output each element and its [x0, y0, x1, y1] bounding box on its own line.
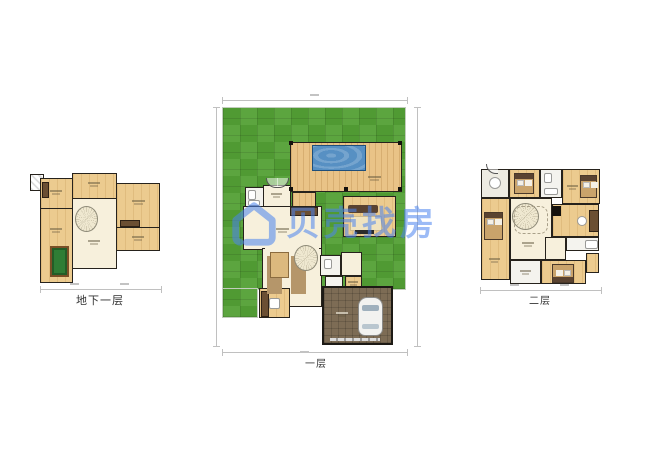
- chair-icon: [577, 216, 587, 226]
- swimming-pool: [312, 145, 366, 171]
- dining-table: [270, 252, 289, 278]
- floorplan-image: 地下一层: [0, 0, 647, 466]
- first-corridor: [341, 252, 362, 276]
- toilet-icon: [324, 259, 332, 269]
- bathtub-icon: [585, 240, 598, 249]
- deck-column: [289, 187, 293, 191]
- garage-door: [330, 338, 380, 341]
- first-dimension-number: [310, 94, 319, 96]
- toilet-icon: [544, 173, 552, 183]
- basement-dimension-number: [70, 283, 79, 285]
- garage-label-smudge: [336, 312, 348, 314]
- toilet-icon: [248, 190, 256, 200]
- second-dimension-number: [510, 284, 519, 286]
- desk: [589, 210, 599, 232]
- bed: [484, 212, 503, 240]
- bed: [552, 264, 574, 283]
- deck-column: [289, 141, 293, 145]
- second-closet: [586, 253, 599, 273]
- entry-label-smudge: [271, 193, 282, 195]
- second-dimension-number: [560, 284, 569, 286]
- basement-spiral-stair: [75, 206, 98, 232]
- basement-room-label-smudge: [50, 228, 62, 230]
- hall-label-smudge: [522, 242, 534, 244]
- basement-room-label-smudge: [132, 236, 144, 238]
- car: [358, 297, 383, 336]
- sofa: [348, 205, 378, 213]
- basement-room-label-smudge: [88, 182, 100, 184]
- kitchen-counter: [261, 291, 269, 317]
- deck-column: [344, 187, 348, 191]
- bed: [514, 173, 534, 194]
- terrace-table-icon: [489, 177, 501, 189]
- bedroom-label-smudge: [489, 258, 500, 260]
- billiard-table: [50, 246, 69, 277]
- basement-cabinet: [42, 182, 49, 198]
- void-label-smudge: [520, 270, 531, 272]
- basement-room-label-smudge: [132, 200, 145, 202]
- deck-label-smudge: [368, 176, 381, 178]
- bed: [580, 175, 597, 198]
- first-dimension-left: [213, 107, 220, 347]
- first-dimension-number: [300, 351, 309, 353]
- basement-room-label-smudge: [88, 240, 100, 242]
- stair-guide-dashed: [514, 206, 548, 234]
- chimney-shaft: [552, 206, 561, 216]
- deck-column: [398, 187, 402, 191]
- second-void-over-living: [510, 260, 541, 284]
- second-corridor: [545, 237, 566, 260]
- first-spiral-stair: [294, 245, 318, 271]
- living-label-smudge: [276, 228, 289, 230]
- basement-room-label-smudge: [50, 190, 62, 192]
- sink-icon: [248, 200, 260, 206]
- rug: [350, 216, 382, 231]
- garden-lawn-left: [222, 288, 258, 318]
- first-floor-label: 一层: [286, 355, 346, 370]
- first-dimension-top: [222, 97, 408, 104]
- storage-label-smudge: [348, 281, 358, 283]
- basement-floor-label: 地下一层: [55, 292, 145, 308]
- deck-column: [398, 141, 402, 145]
- basement-dimension-number: [120, 283, 129, 285]
- basement-dresser: [120, 220, 140, 227]
- stove-icon: [269, 298, 280, 309]
- tv-console: [355, 230, 374, 234]
- rear-porch: [292, 192, 316, 207]
- bedroom-label-smudge: [567, 185, 578, 187]
- second-floor-label: 二层: [510, 292, 570, 307]
- sink-icon: [544, 188, 558, 195]
- kitchenette-counter: [290, 207, 318, 216]
- first-dimension-right: [414, 107, 421, 347]
